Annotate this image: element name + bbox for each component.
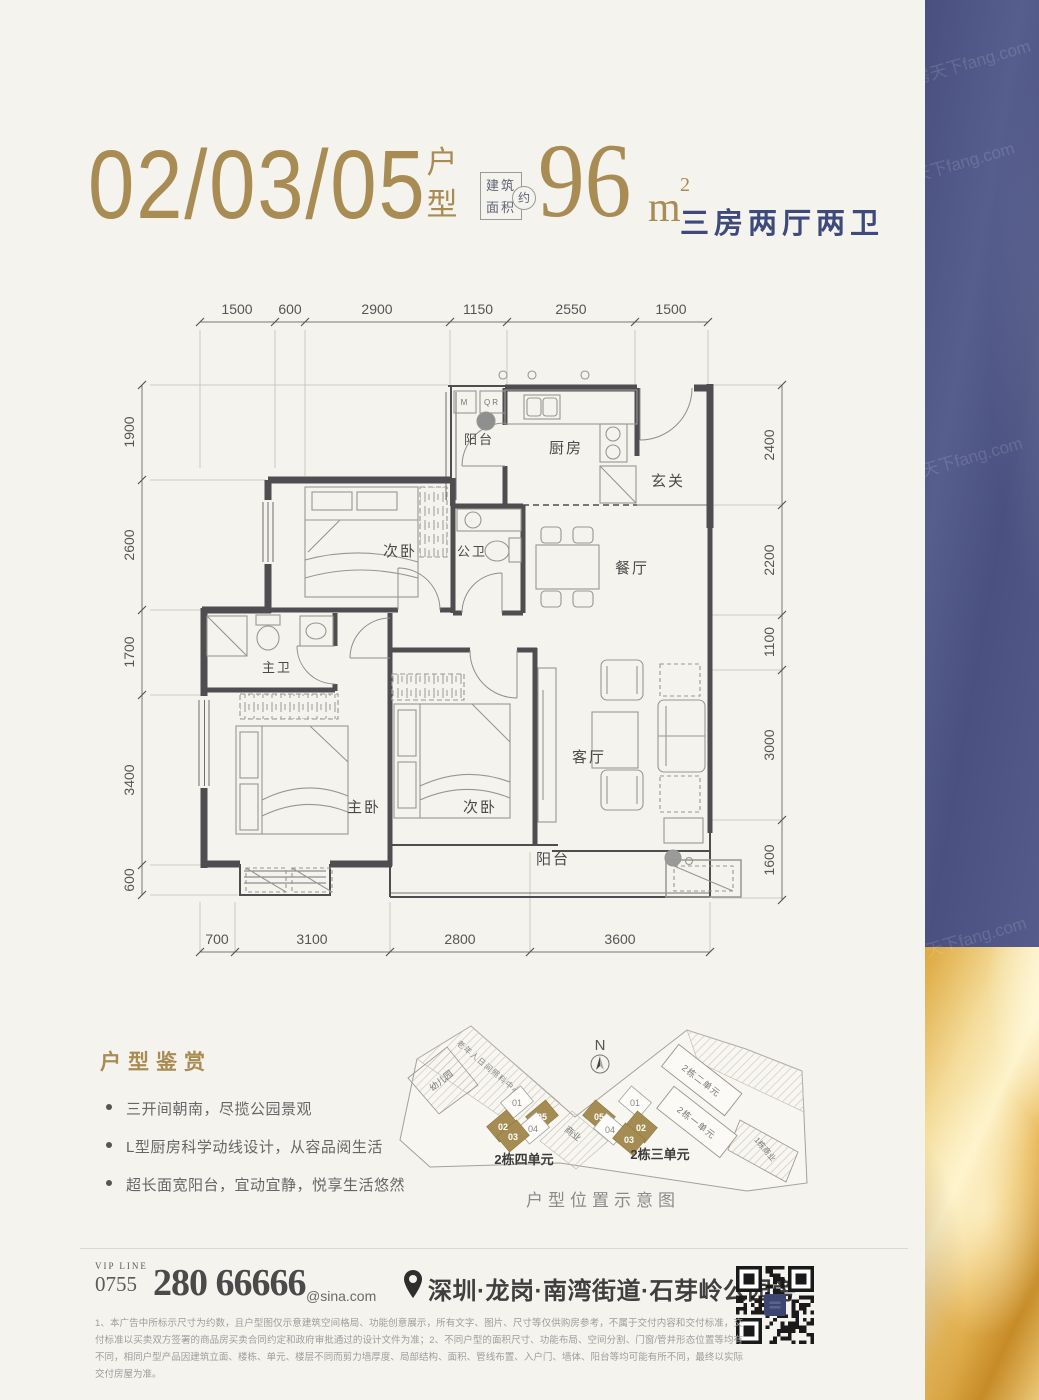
phone-number[interactable]: 280 66666 bbox=[153, 1261, 306, 1305]
bullet-text: L型厨房科学动线设计，从容品阅生活 bbox=[126, 1136, 383, 1157]
bullet-icon bbox=[106, 1104, 112, 1110]
unit-right-02: 02 bbox=[636, 1123, 646, 1133]
dim-top-3: 2900 bbox=[361, 301, 392, 317]
list-item: 三开间朝南，尽揽公园景观 bbox=[100, 1098, 410, 1119]
cluster-right-label: 2栋三单元 bbox=[630, 1147, 689, 1162]
dim-left-2: 2600 bbox=[121, 529, 137, 560]
unit-left-04: 04 bbox=[528, 1124, 538, 1134]
header: 02/03/05 户 型 建筑 面积 约 96 m 2 三房两厅两卫 bbox=[88, 126, 928, 261]
unit-left-01: 01 bbox=[512, 1098, 522, 1108]
location-pin-icon bbox=[402, 1268, 424, 1302]
dim-top-1: 1500 bbox=[221, 301, 252, 317]
furniture bbox=[207, 371, 741, 897]
dim-bottom-2: 3100 bbox=[296, 931, 327, 947]
room-bedroom-master: 主卧 bbox=[347, 799, 381, 816]
room-config: 三房两厅两卫 bbox=[680, 200, 884, 242]
vip-line-label: VIP LINE bbox=[95, 1261, 148, 1271]
appreciation-list: 三开间朝南，尽揽公园景观 L型厨房科学动线设计，从容品阅生活 超长面宽阳台，宜动… bbox=[100, 1098, 410, 1195]
area-exponent: 2 bbox=[680, 174, 690, 197]
dim-top-5: 2550 bbox=[555, 301, 586, 317]
cluster-left-label: 2栋四单元 bbox=[494, 1152, 553, 1167]
floorplan-drawing: 1500 600 2900 1150 2550 1500 1900 2600 1… bbox=[100, 295, 820, 995]
unit-numbers: 02/03/05 bbox=[88, 136, 426, 233]
area-value: 96 bbox=[538, 128, 631, 234]
vip-line-block: VIP LINE 0755 bbox=[95, 1261, 148, 1297]
bullet-icon bbox=[106, 1142, 112, 1148]
north-compass-icon: N bbox=[591, 1037, 609, 1073]
band-gold-fabric bbox=[925, 947, 1039, 1400]
dim-top-2: 600 bbox=[278, 301, 302, 317]
room-bath-master: 主卫 bbox=[262, 660, 292, 675]
siteplan-caption: 户型位置示意图 bbox=[526, 1191, 680, 1210]
legal-disclaimer: 1、本广告中所标示尺寸为约数，且户型图仅示意建筑空间格局、功能创意展示，所有文字… bbox=[95, 1315, 743, 1383]
unit-right-03: 03 bbox=[624, 1135, 634, 1145]
list-item: L型厨房科学动线设计，从容品阅生活 bbox=[100, 1136, 410, 1157]
unit-left-03: 03 bbox=[508, 1132, 518, 1142]
unit-left-02: 02 bbox=[498, 1122, 508, 1132]
email-suffix: @sina.com bbox=[306, 1288, 376, 1304]
dim-right-5: 1600 bbox=[761, 844, 777, 875]
unit-type-label: 户 型 bbox=[424, 142, 460, 226]
unit-type-char-1: 户 bbox=[424, 142, 460, 184]
qr-code[interactable] bbox=[736, 1266, 814, 1344]
unit-right-01: 01 bbox=[630, 1098, 640, 1108]
unit-left-05: 05 bbox=[537, 1112, 547, 1122]
bullet-icon bbox=[106, 1180, 112, 1186]
room-bath-public: 公卫 bbox=[457, 544, 487, 559]
room-kitchen: 厨房 bbox=[549, 440, 583, 457]
unit-right-04: 04 bbox=[605, 1125, 615, 1135]
appreciation-title: 户型鉴赏 bbox=[100, 1046, 410, 1076]
bullet-text: 三开间朝南，尽揽公园景观 bbox=[126, 1098, 312, 1119]
area-approx-badge: 约 bbox=[512, 186, 536, 210]
compass-n-label: N bbox=[595, 1037, 606, 1054]
room-living: 客厅 bbox=[572, 749, 606, 766]
appreciation-section: 户型鉴赏 三开间朝南，尽揽公园景观 L型厨房科学动线设计，从容品阅生活 超长面宽… bbox=[100, 1046, 410, 1212]
door-arcs bbox=[297, 388, 692, 698]
room-bedroom2-bottom: 次卧 bbox=[463, 799, 497, 816]
dim-left-4: 3400 bbox=[121, 764, 137, 795]
dim-right-4: 3000 bbox=[761, 729, 777, 760]
bullet-text: 超长面宽阳台，宜动宜静，悦享生活悠然 bbox=[126, 1174, 405, 1195]
dim-right-3: 1100 bbox=[761, 627, 777, 657]
dim-bottom-1: 700 bbox=[205, 931, 229, 947]
dim-top-6: 1500 bbox=[655, 301, 686, 317]
unit-type-char-2: 型 bbox=[424, 184, 460, 226]
footer-divider bbox=[80, 1248, 908, 1249]
dim-left-3: 1700 bbox=[121, 636, 137, 667]
walls bbox=[199, 384, 712, 897]
room-bedroom2-top: 次卧 bbox=[383, 543, 417, 560]
room-balcony-bottom: 阳台 bbox=[536, 851, 570, 868]
equip-qr-label: QR bbox=[484, 398, 500, 407]
list-item: 超长面宽阳台，宜动宜静，悦享生活悠然 bbox=[100, 1174, 410, 1195]
equip-m-label: M bbox=[461, 398, 470, 407]
dim-left-1: 1900 bbox=[121, 416, 137, 447]
area-unit: m bbox=[648, 184, 681, 232]
dim-bottom-3: 2800 bbox=[444, 931, 475, 947]
room-dining: 餐厅 bbox=[615, 560, 649, 577]
dim-left-5: 600 bbox=[121, 868, 137, 892]
room-balcony-top: 阳台 bbox=[464, 432, 494, 447]
right-decor-band: 房天下fang.com 房天下fang.com 房天下fang.com 房天下f… bbox=[925, 0, 1039, 1400]
area-code: 0755 bbox=[95, 1272, 148, 1297]
dimension-extension-lines bbox=[150, 330, 782, 952]
dim-top-4: 1150 bbox=[463, 301, 493, 317]
room-foyer: 玄关 bbox=[651, 473, 685, 490]
siteplan-diagram: 2栋二单元 2栋一单元 老年人日间照料中心 幼儿园 商业 1栋商业 01 05 … bbox=[380, 1018, 820, 1218]
dim-bottom-4: 3600 bbox=[604, 931, 635, 947]
dim-right-1: 2400 bbox=[761, 429, 777, 460]
unit-right-05: 05 bbox=[594, 1112, 604, 1122]
dim-right-2: 2200 bbox=[761, 544, 777, 575]
